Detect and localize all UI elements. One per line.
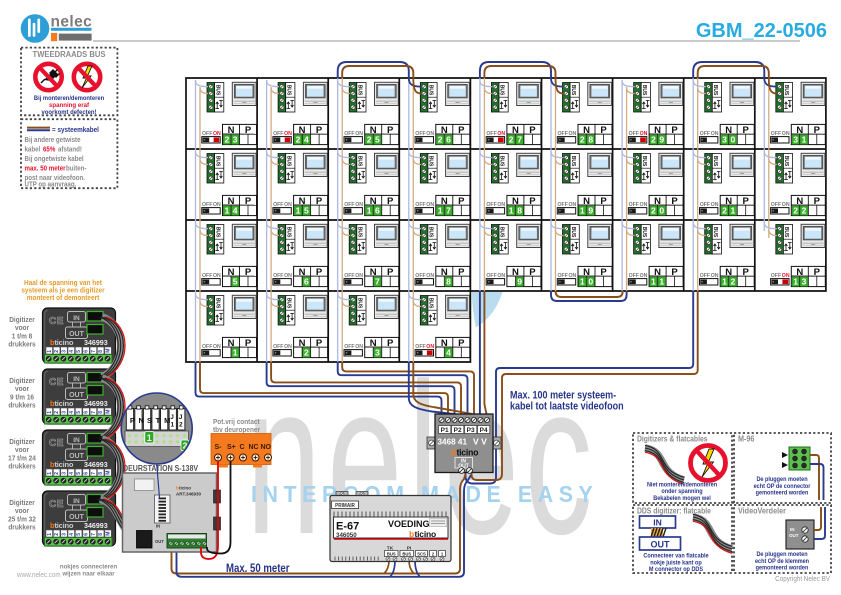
svg-text:BUS: BUS [712, 156, 718, 167]
svg-text:5: 5 [76, 533, 82, 536]
svg-text:7: 7 [91, 472, 97, 475]
svg-text:2: 2 [304, 348, 309, 358]
svg-text:ticino: ticino [55, 521, 74, 530]
svg-text:ticino: ticino [457, 448, 480, 458]
svg-text:voor: voor [15, 386, 29, 393]
svg-text:2: 2 [793, 206, 798, 216]
svg-text:kabel: kabel [25, 146, 41, 153]
svg-text:1: 1 [47, 533, 53, 536]
svg-text:P: P [743, 267, 750, 278]
svg-text:P: P [529, 267, 536, 278]
svg-text:4: 4 [69, 411, 75, 414]
svg-text:Bij ongetwiste kabel: Bij ongetwiste kabel [25, 156, 84, 163]
svg-text:P: P [387, 125, 394, 136]
svg-text:TWEEDRAADS BUS: TWEEDRAADS BUS [33, 50, 106, 59]
svg-text:5: 5 [375, 135, 380, 145]
svg-text:6: 6 [84, 411, 90, 414]
svg-text:buiten-: buiten- [66, 165, 86, 172]
svg-text:7: 7 [446, 206, 451, 216]
svg-text:1: 1 [659, 277, 664, 287]
svg-text:BUS: BUS [285, 85, 291, 96]
svg-text:1: 1 [47, 411, 53, 414]
svg-text:7: 7 [517, 135, 522, 145]
svg-text:ticino: ticino [179, 486, 191, 491]
svg-text:BUS: BUS [357, 85, 363, 96]
svg-text:3: 3 [62, 350, 68, 353]
svg-text:monteert of demonteert: monteert of demonteert [27, 295, 100, 302]
svg-text:P: P [458, 196, 465, 207]
svg-text:P: P [458, 338, 465, 349]
svg-text:3468 41: 3468 41 [438, 436, 468, 446]
svg-text:8: 8 [588, 135, 593, 145]
svg-text:P: P [671, 267, 678, 278]
svg-text:0: 0 [588, 277, 593, 287]
svg-text:2: 2 [179, 422, 183, 429]
svg-text:P: P [387, 267, 394, 278]
svg-text:8: 8 [98, 411, 104, 414]
svg-text:M: M [106, 471, 112, 475]
svg-text:BUS: BUS [641, 227, 647, 238]
svg-text:2: 2 [509, 135, 514, 145]
svg-text:1: 1 [233, 348, 238, 358]
svg-text:P: P [316, 125, 323, 136]
svg-text:P: P [387, 338, 394, 349]
svg-text:BUS: BUS [214, 227, 220, 238]
svg-text:1: 1 [171, 422, 175, 429]
svg-text:Copyright Nelec BV: Copyright Nelec BV [775, 576, 830, 583]
svg-text:T: T [156, 416, 161, 425]
svg-text:1: 1 [722, 277, 727, 287]
svg-text:OUT: OUT [69, 331, 85, 338]
svg-text:9: 9 [588, 206, 593, 216]
svg-text:1: 1 [367, 206, 372, 216]
svg-text:BUS: BUS [402, 551, 411, 556]
svg-text:3: 3 [722, 135, 727, 145]
svg-text:0: 0 [659, 206, 664, 216]
svg-text:BUS: BUS [428, 298, 434, 309]
svg-text:P: P [458, 125, 465, 136]
svg-text:M: M [106, 349, 112, 353]
svg-text:S+: S+ [227, 444, 236, 451]
svg-text:1: 1 [651, 277, 656, 287]
svg-text:6: 6 [446, 135, 451, 145]
svg-text:1: 1 [731, 206, 736, 216]
svg-text:BUS: BUS [499, 227, 505, 238]
svg-text:8: 8 [446, 277, 451, 287]
svg-text:V V: V V [473, 437, 487, 447]
svg-text:3: 3 [62, 472, 68, 475]
svg-text:BUS: BUS [428, 227, 434, 238]
svg-text:P: P [387, 196, 394, 207]
svg-text:M connector op DDS: M connector op DDS [649, 567, 703, 573]
svg-text:4: 4 [69, 472, 75, 475]
svg-text:9: 9 [659, 135, 664, 145]
svg-text:BUS: BUS [285, 156, 291, 167]
svg-text:SCS: SCS [417, 551, 426, 556]
svg-text:8: 8 [517, 206, 522, 216]
svg-text:De pluggen moeten: De pluggen moeten [756, 552, 807, 558]
svg-text:2: 2 [438, 135, 443, 145]
svg-text:OUT: OUT [69, 514, 85, 521]
svg-text:P: P [130, 416, 135, 425]
svg-text:P: P [600, 267, 607, 278]
svg-text:IN: IN [73, 498, 80, 505]
svg-text:BUS: BUS [783, 156, 789, 167]
svg-text:S: S [147, 416, 152, 425]
svg-text:Connecteer van flatcable: Connecteer van flatcable [643, 553, 709, 559]
svg-text:Niet monteren/demonteren: Niet monteren/demonteren [647, 482, 717, 488]
svg-text:CE: CE [49, 438, 64, 449]
svg-text:NC: NC [249, 444, 259, 451]
svg-text:echt OP de klemmen: echt OP de klemmen [755, 558, 809, 564]
svg-text:ticino: ticino [55, 399, 74, 408]
svg-text:346993: 346993 [84, 399, 108, 408]
svg-text:Digitizer: Digitizer [9, 378, 35, 385]
svg-text:BUS: BUS [428, 156, 434, 167]
svg-text:BUS: BUS [499, 85, 505, 96]
svg-text:J: J [170, 414, 174, 421]
svg-text:kabel tot laatste videofoon: kabel tot laatste videofoon [510, 401, 624, 413]
svg-text:7: 7 [91, 411, 97, 414]
svg-text:Haal de spanning van het: Haal de spanning van het [24, 280, 103, 287]
svg-text:NO: NO [261, 444, 272, 451]
svg-text:CE: CE [49, 316, 64, 327]
svg-text:7: 7 [91, 350, 97, 353]
svg-text:BUS: BUS [214, 85, 220, 96]
svg-text:OUT: OUT [155, 539, 164, 544]
svg-text:M: M [106, 532, 112, 536]
svg-text:J: J [179, 414, 183, 421]
svg-text:BUS: BUS [214, 298, 220, 309]
svg-text:2: 2 [731, 277, 736, 287]
svg-text:www.nelec.com: www.nelec.com [16, 572, 61, 579]
svg-text:7: 7 [91, 533, 97, 536]
svg-text:N: N [139, 416, 144, 425]
svg-text:ticino: ticino [55, 338, 74, 347]
svg-text:gemonteerd worden: gemonteerd worden [756, 490, 809, 496]
svg-text:346050: 346050 [336, 532, 357, 539]
svg-text:CE: CE [49, 499, 64, 510]
svg-text:max. 50 meter: max. 50 meter [25, 165, 66, 172]
svg-text:C: C [240, 444, 245, 451]
svg-text:346993: 346993 [84, 338, 108, 347]
svg-text:IN: IN [73, 437, 80, 444]
svg-text:IN: IN [790, 527, 795, 532]
svg-text:6: 6 [84, 533, 90, 536]
svg-text:1: 1 [47, 472, 53, 475]
svg-text:P: P [743, 196, 750, 207]
svg-text:6: 6 [84, 472, 90, 475]
svg-text:Digitizer: Digitizer [9, 439, 35, 446]
svg-text:Digitizer: Digitizer [9, 317, 35, 324]
svg-text:1: 1 [580, 277, 585, 287]
svg-text:5: 5 [76, 350, 82, 353]
svg-text:E-67: E-67 [336, 521, 359, 533]
svg-text:1: 1 [147, 433, 152, 443]
svg-text:BUS: BUS [783, 227, 789, 238]
svg-text:ticino: ticino [415, 529, 436, 539]
svg-text:P: P [600, 196, 607, 207]
svg-text:2: 2 [54, 472, 60, 475]
svg-text:DDS digitizer: flatcable: DDS digitizer: flatcable [637, 506, 711, 516]
svg-text:4: 4 [69, 533, 75, 536]
svg-text:1: 1 [296, 206, 301, 216]
svg-text:drukkers: drukkers [8, 402, 35, 409]
svg-text:OUT: OUT [789, 533, 799, 538]
svg-text:5: 5 [76, 472, 82, 475]
svg-text:1: 1 [438, 206, 443, 216]
svg-text:6: 6 [375, 206, 380, 216]
svg-text:BUS: BUS [641, 85, 647, 96]
svg-text:2: 2 [651, 206, 656, 216]
svg-text:346993: 346993 [84, 521, 108, 530]
svg-text:P: P [316, 267, 323, 278]
svg-text:2: 2 [651, 135, 656, 145]
svg-text:P: P [671, 196, 678, 207]
svg-text:BUS: BUS [214, 156, 220, 167]
svg-text:BUS: BUS [712, 85, 718, 96]
svg-text:Digitizers & flatcables: Digitizers & flatcables [637, 434, 707, 444]
svg-text:4: 4 [446, 348, 451, 358]
svg-text:9: 9 [517, 277, 522, 287]
svg-text:drukkers: drukkers [8, 341, 35, 348]
svg-text:OUT: OUT [69, 392, 85, 399]
svg-text:25 t/m 32: 25 t/m 32 [8, 516, 36, 523]
svg-text:4: 4 [304, 135, 309, 145]
svg-text:P: P [316, 338, 323, 349]
svg-text:3: 3 [802, 277, 807, 287]
svg-text:IN: IN [73, 376, 80, 383]
svg-text:nokje juiste kant op: nokje juiste kant op [650, 560, 702, 566]
svg-text:S-: S- [215, 444, 223, 451]
svg-text:2: 2 [54, 533, 60, 536]
svg-text:P: P [600, 125, 607, 136]
svg-text:8: 8 [98, 533, 104, 536]
svg-text:1: 1 [793, 277, 798, 287]
svg-text:DEURSTATION S-138V: DEURSTATION S-138V [123, 464, 198, 474]
svg-text:2: 2 [225, 135, 230, 145]
svg-text:5: 5 [76, 411, 82, 414]
svg-text:1: 1 [47, 350, 53, 353]
svg-text:afstand!: afstand! [58, 146, 82, 153]
svg-text:6: 6 [84, 350, 90, 353]
svg-text:7: 7 [375, 277, 380, 287]
svg-text:P3: P3 [467, 427, 475, 434]
svg-text:2: 2 [54, 411, 60, 414]
svg-text:IN: IN [653, 518, 662, 528]
svg-text:De pluggen moeten: De pluggen moeten [756, 477, 807, 483]
svg-text:P: P [316, 196, 323, 207]
svg-text:BUS: BUS [285, 227, 291, 238]
svg-text:P2: P2 [454, 427, 462, 434]
svg-text:BUS: BUS [285, 298, 291, 309]
svg-text:P: P [814, 125, 821, 136]
svg-text:1 t/m 8: 1 t/m 8 [12, 333, 33, 340]
svg-text:b: b [409, 529, 414, 539]
svg-text:OUT: OUT [651, 540, 671, 550]
svg-text:5: 5 [304, 206, 309, 216]
svg-text:17 t/m 24: 17 t/m 24 [8, 455, 36, 462]
svg-text:1: 1 [802, 135, 807, 145]
svg-text:IN: IN [156, 524, 160, 529]
svg-text:BUS: BUS [783, 85, 789, 96]
svg-text:Bekabelen mogen wel: Bekabelen mogen wel [653, 496, 711, 502]
svg-text:P: P [814, 267, 821, 278]
svg-text:P: P [743, 125, 750, 136]
svg-text:drukkers: drukkers [8, 463, 35, 470]
svg-text:2: 2 [296, 135, 301, 145]
svg-text:CE: CE [49, 377, 64, 388]
svg-text:P4: P4 [480, 427, 488, 434]
svg-text:8: 8 [98, 350, 104, 353]
svg-text:ticino: ticino [55, 460, 74, 469]
svg-text:0: 0 [731, 135, 736, 145]
svg-text:4: 4 [233, 206, 238, 216]
svg-text:OUT: OUT [69, 453, 85, 460]
svg-text:P: P [245, 338, 252, 349]
svg-text:Bij andere getwiste: Bij andere getwiste [25, 137, 81, 144]
svg-text:BUS: BUS [570, 227, 576, 238]
svg-text:Digitizer: Digitizer [9, 500, 35, 507]
svg-text:2: 2 [580, 135, 585, 145]
svg-text:BUS: BUS [641, 156, 647, 167]
svg-text:1: 1 [580, 206, 585, 216]
svg-text:PRIMAIR: PRIMAIR [335, 503, 355, 509]
svg-text:P: P [245, 267, 252, 278]
svg-text:UTP op aanvraag.: UTP op aanvraag. [25, 181, 77, 188]
svg-text:BUS: BUS [357, 298, 363, 309]
svg-text:P: P [245, 196, 252, 207]
svg-text:1: 1 [225, 206, 230, 216]
svg-text:P: P [814, 196, 821, 207]
svg-text:4: 4 [69, 350, 75, 353]
svg-text:P: P [245, 125, 252, 136]
svg-text:P: P [671, 125, 678, 136]
svg-text:voor: voor [15, 508, 29, 515]
svg-text:BUS: BUS [357, 227, 363, 238]
svg-text:onder spanning: onder spanning [661, 489, 703, 495]
svg-text:voorkomt defecten!: voorkomt defecten! [41, 109, 96, 116]
svg-text:346993: 346993 [84, 460, 108, 469]
svg-text:9 t/m 16: 9 t/m 16 [10, 394, 34, 401]
svg-text:8: 8 [98, 472, 104, 475]
svg-text:BUS: BUS [570, 156, 576, 167]
svg-text:gemonteerd worden: gemonteerd worden [756, 565, 809, 571]
svg-text:65%: 65% [43, 146, 55, 153]
svg-text:echt OP de connector: echt OP de connector [754, 483, 811, 489]
svg-text:BUS: BUS [387, 551, 396, 556]
svg-text:systeem als je een digitizer: systeem als je een digitizer [21, 287, 105, 294]
svg-text:wijzen naar elkaar: wijzen naar elkaar [61, 570, 115, 577]
svg-text:= systeemkabel: = systeemkabel [52, 127, 99, 134]
svg-text:P1: P1 [441, 427, 449, 434]
svg-text:drukkers: drukkers [8, 524, 35, 531]
svg-text:3: 3 [62, 533, 68, 536]
svg-text:voor: voor [15, 447, 29, 454]
svg-text:2: 2 [802, 206, 807, 216]
svg-text:GBM_22-0506: GBM_22-0506 [696, 20, 827, 42]
svg-text:ART.346930: ART.346930 [176, 492, 202, 497]
svg-text:5: 5 [233, 277, 238, 287]
svg-text:6: 6 [304, 277, 309, 287]
svg-text:3: 3 [233, 135, 238, 145]
svg-text:2: 2 [54, 350, 60, 353]
svg-text:VOEDING: VOEDING [388, 519, 430, 529]
svg-text:BUS: BUS [357, 156, 363, 167]
svg-text:1: 1 [509, 206, 514, 216]
svg-text:tbv deuropener: tbv deuropener [213, 427, 260, 434]
svg-text:M-96: M-96 [738, 434, 754, 443]
svg-text:BUS: BUS [499, 156, 505, 167]
svg-text:3: 3 [62, 411, 68, 414]
svg-text:P: P [529, 196, 536, 207]
svg-text:2: 2 [367, 135, 372, 145]
svg-text:voor: voor [15, 325, 29, 332]
svg-text:BUS: BUS [428, 85, 434, 96]
svg-text:IN: IN [73, 315, 80, 322]
svg-text:3: 3 [375, 348, 380, 358]
svg-text:2: 2 [722, 206, 727, 216]
svg-text:Pot.vrij contact: Pot.vrij contact [213, 419, 260, 426]
svg-text:M: M [106, 410, 112, 414]
svg-text:BUS: BUS [712, 227, 718, 238]
svg-text:P: P [458, 267, 465, 278]
svg-text:3: 3 [793, 135, 798, 145]
svg-text:P: P [529, 125, 536, 136]
svg-text:BUS: BUS [570, 85, 576, 96]
svg-text:Max. 50 meter: Max. 50 meter [226, 562, 290, 575]
svg-text:VideoVerdeler: VideoVerdeler [738, 506, 786, 515]
